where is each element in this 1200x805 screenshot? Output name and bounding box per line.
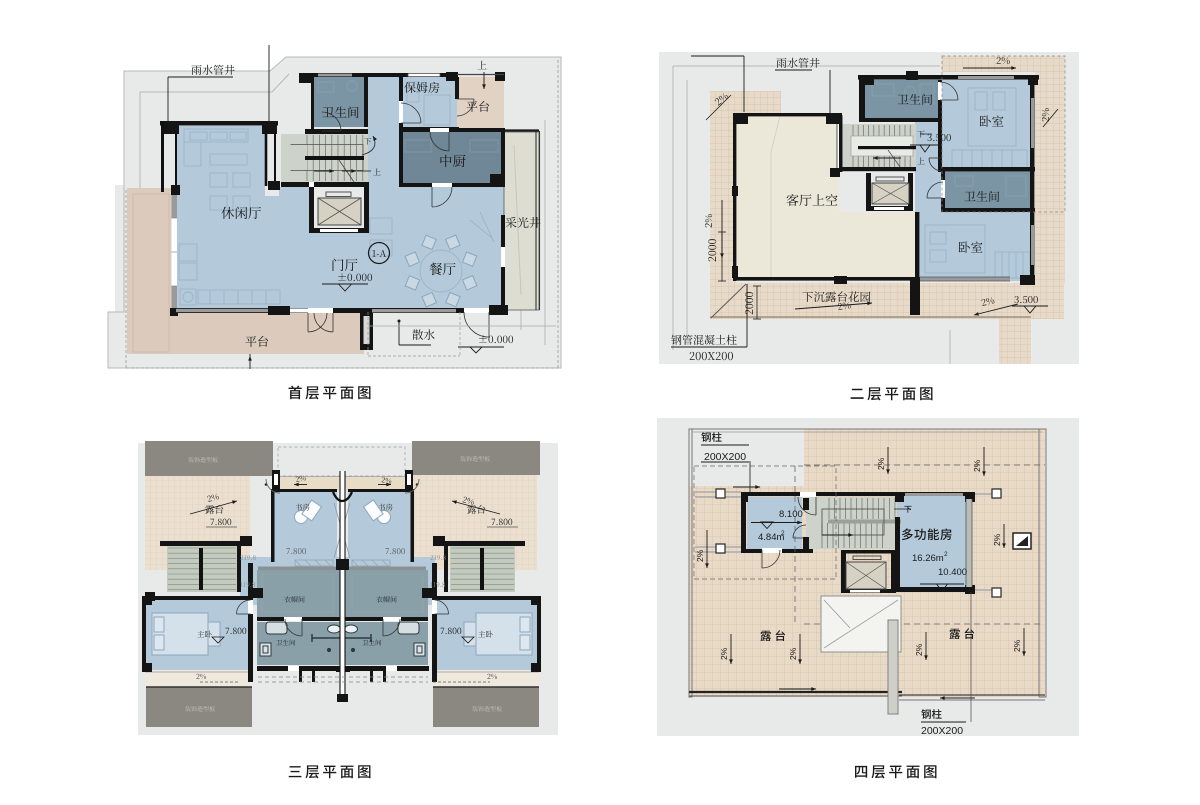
svg-text:2%: 2% — [788, 647, 798, 660]
svg-text:10.400: 10.400 — [938, 567, 967, 578]
svg-text:2%: 2% — [719, 647, 729, 660]
svg-text:2%: 2% — [972, 459, 982, 472]
svg-text:8.100: 8.100 — [779, 509, 803, 520]
svg-text:2%: 2% — [1012, 639, 1022, 652]
svg-text:2: 2 — [944, 551, 948, 558]
svg-text:2%: 2% — [992, 533, 1002, 546]
svg-text:200X200: 200X200 — [921, 725, 963, 737]
svg-text:16.26m: 16.26m — [912, 553, 944, 564]
svg-text:2%: 2% — [876, 457, 886, 470]
svg-text:2%: 2% — [695, 549, 705, 562]
svg-text:200X200: 200X200 — [704, 451, 746, 463]
svg-text:2%: 2% — [914, 643, 924, 656]
svg-text:2: 2 — [781, 530, 785, 537]
